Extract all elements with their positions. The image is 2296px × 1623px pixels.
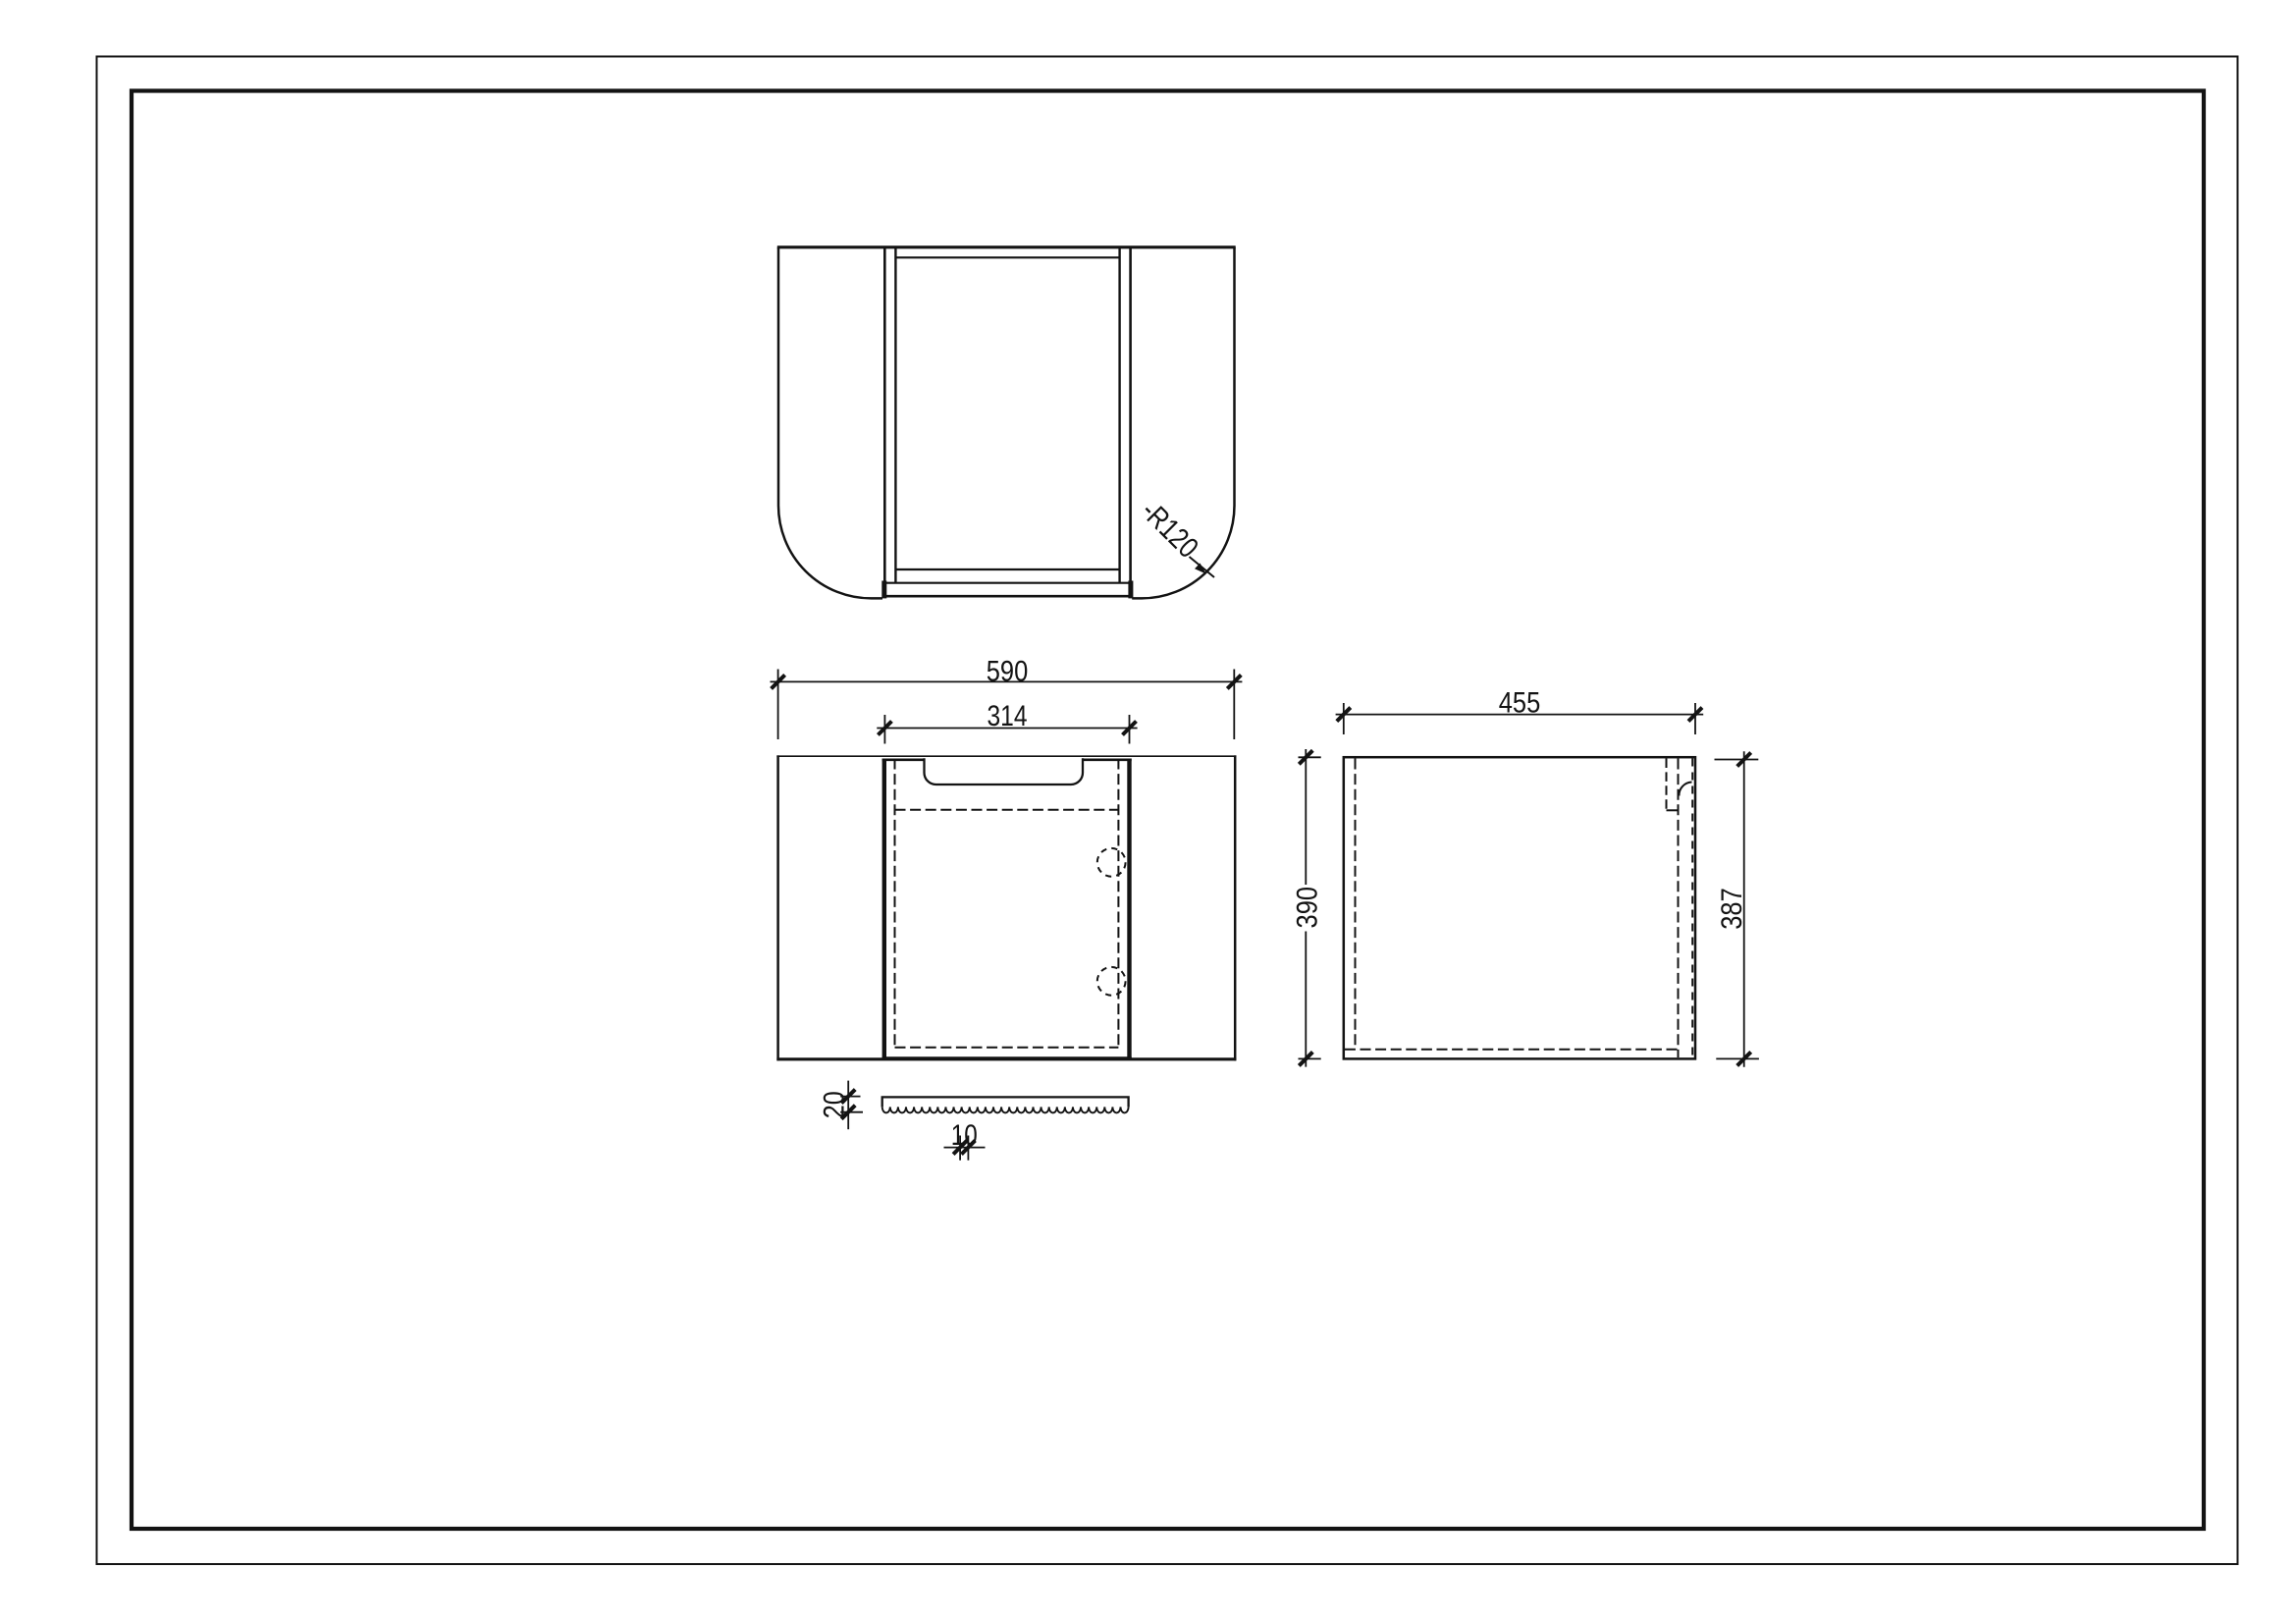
svg-text:10: 10 (951, 1119, 978, 1152)
svg-text:387: 387 (1716, 888, 1748, 930)
svg-text:455: 455 (1499, 686, 1541, 719)
svg-text:590: 590 (987, 656, 1029, 688)
svg-text:20: 20 (819, 1091, 851, 1118)
svg-text:314: 314 (988, 700, 1028, 732)
svg-text:390: 390 (1292, 887, 1324, 929)
